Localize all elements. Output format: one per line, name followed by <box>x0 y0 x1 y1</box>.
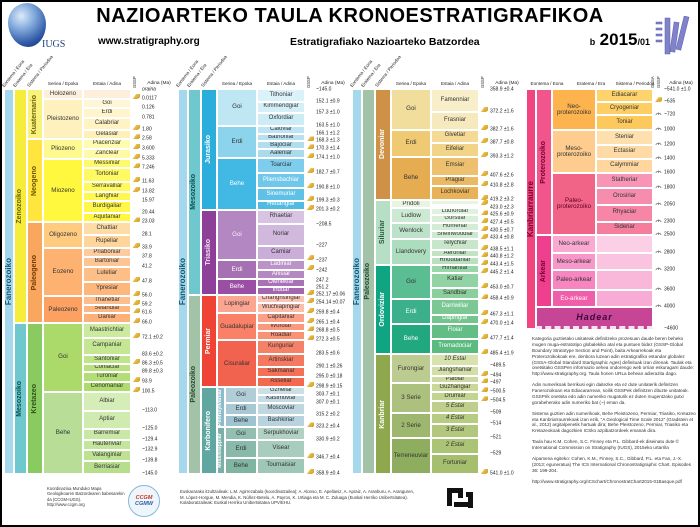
period-cell: Siluriar <box>375 200 391 265</box>
age-label: 477.7 ±1.4 <box>490 336 514 342</box>
age-label: 407.6 ±2.6 <box>490 172 514 178</box>
age-label: 440.8 ±1.2 <box>490 254 514 260</box>
series-cell: Pliozeno <box>43 139 83 158</box>
gssp-header: GSSP <box>132 76 137 88</box>
stage-cell <box>596 270 653 290</box>
age-label: 430.5 ±0.7 <box>490 227 514 233</box>
age-label: 3200 <box>664 267 675 273</box>
age-label: ~242 <box>316 268 327 274</box>
period-cell: Paleogeno <box>27 222 43 323</box>
panel-column-headers: Eontema / EonaEratema / EraSistema / Per… <box>4 59 178 89</box>
stage-cell: Pragiar <box>431 176 479 186</box>
era-cell: Arkear <box>536 235 552 307</box>
series-cell: Terreneuviar <box>391 438 431 474</box>
age-label: 265.1 ±0.4 <box>316 319 340 325</box>
stage-cell: Aeroniar <box>431 250 479 258</box>
age-label: 37.8 <box>142 254 152 260</box>
stage-header: Estaia / Adina <box>83 81 131 86</box>
age-label: 252.17 ±0.06 <box>316 292 345 298</box>
era-header: Eratema / Era <box>568 81 614 86</box>
age-label: 7.246 <box>142 165 155 171</box>
era-cell: Paleozoiko <box>362 89 375 474</box>
series-cell: Goi <box>391 265 431 299</box>
age-top-label: oraina <box>142 86 156 92</box>
series-cell: Paleo-proterozoiko <box>552 173 596 234</box>
age-label: 358.9 ±0.4 <box>316 471 340 477</box>
age-column: 358.9 ±0.4372.2 ±1.6382.7 ±1.6387.7 ±0.8… <box>488 89 526 474</box>
series-cell: Guadalupiar <box>217 313 257 341</box>
age-label: 2500 <box>664 232 675 238</box>
age-label: 0.0117 <box>142 95 157 101</box>
footnote-ages: Adin numerikoak berrikusi egin daitezke … <box>532 382 696 406</box>
age-label: 13.82 <box>142 188 155 194</box>
gssa-clock-icon: ◷ <box>655 250 662 253</box>
gssa-clock-icon: ◷ <box>655 219 662 222</box>
ics-logo <box>654 16 692 61</box>
stage-cell: 4 Estai <box>431 413 479 424</box>
panel-column-headers: Eontema / EonaEratema / EraSistema / Per… <box>178 59 352 89</box>
series-cell: Erdi <box>225 440 257 458</box>
stage-cell: Goi <box>83 99 131 109</box>
stage-cell: Chattiar <box>83 222 131 235</box>
stage-cell: Hettangiar <box>257 201 305 210</box>
age-label: 1600 <box>664 170 675 176</box>
age-label: ~497 <box>490 380 501 386</box>
stage-cell: Tournaisiar <box>257 458 305 474</box>
stage-cell: Gelasiar <box>83 130 131 140</box>
age-label: 170.3 ±1.4 <box>316 146 340 152</box>
age-label: 307.0 ±0.1 <box>316 399 340 405</box>
stage-cell: Langhiar <box>83 192 131 202</box>
gssp-header: GSSP <box>656 76 661 88</box>
series-cell: Meso-proterozoiko <box>552 130 596 173</box>
stage-cell: Sandbiar <box>431 288 479 299</box>
footnote-citation: Aipamena egiteko: Cohen, K.M., Finney, S… <box>532 456 696 474</box>
stage-cell: Aptiar <box>83 411 131 428</box>
age-label: 290.1 ±0.26 <box>316 364 342 370</box>
age-label: 372.2 ±1.6 <box>490 109 514 115</box>
stage-cell: Anisiar <box>257 270 305 280</box>
stage-cell: Bajociar <box>257 141 305 149</box>
series-cell: Goi <box>225 427 257 440</box>
stage-cell: Steniar <box>596 130 653 144</box>
gssp-header: GSSP <box>306 76 311 88</box>
stage-cell: Valanginiar <box>83 450 131 462</box>
stage-cell: Moscoviar <box>257 403 305 415</box>
stage-cell: Oxfordiar <box>257 113 305 126</box>
series-cell: Ludlow <box>391 208 431 223</box>
age-label: 174.1 ±1.0 <box>316 155 340 161</box>
series-cell: Pridoli <box>391 200 431 208</box>
age-label: 2.58 <box>142 136 152 142</box>
age-label: 438.5 ±1.1 <box>490 246 514 252</box>
gssp-spike-icon <box>479 469 488 474</box>
stage-cell: Ypresiar <box>83 282 131 297</box>
stage-cell: Toarciar <box>257 158 305 173</box>
stage-cell: Olenekiar <box>257 279 305 287</box>
stage-cell: 2 Estai <box>431 438 479 453</box>
stage-cell: Piacenziar <box>83 139 131 149</box>
stage-cell: Gorstiar <box>431 215 479 223</box>
stage-cell: Turoniar <box>83 372 131 382</box>
stage-cell: Drumiar <box>431 392 479 401</box>
stage-cell: Kunguriar <box>257 340 305 354</box>
era-cell: Proterozoiko <box>536 89 552 235</box>
age-label: 93.9 <box>142 379 152 385</box>
eon-strip: Fanerozoiko <box>178 89 188 474</box>
stage-cell: Barremiar <box>83 429 131 441</box>
stage-cell: Rhaetiar <box>257 210 305 225</box>
series-cell: Pleistozeno <box>43 99 83 140</box>
age-label: 303.7 ±0.1 <box>316 392 340 398</box>
age-label: 254.14 ±0.07 <box>316 299 345 305</box>
period-cell: Neogeno <box>27 139 43 222</box>
era-cell: Mesozoiko <box>188 89 201 295</box>
stage-cell: Serravalliar <box>83 182 131 192</box>
age-label: 433.4 ±0.8 <box>490 235 514 241</box>
stage-cell: Aaleniar <box>257 149 305 158</box>
stage-cell <box>431 200 479 205</box>
stage-cell: Bathoniar <box>257 134 305 142</box>
stage-cell: Kasimoviar <box>257 395 305 403</box>
stage-cell: Maastrichtiar <box>83 323 131 338</box>
series-header: Seriea / Epoka <box>43 81 83 86</box>
age-header: Adina (Ma) <box>488 81 526 86</box>
stage-cell: Cryogeniar <box>596 102 653 115</box>
stage-cell: Calabriar <box>83 118 131 130</box>
age-label: ~129.4 <box>142 437 157 443</box>
gssa-clock-icon: ◷ <box>655 127 662 130</box>
gssa-clock-icon: ◷ <box>655 185 662 188</box>
stage-cell: Selandiar <box>83 305 131 314</box>
age-label: 83.6 ±0.2 <box>142 352 163 358</box>
stage-cell: Changhsingiar <box>257 295 305 303</box>
series-cell: Behe <box>217 279 257 294</box>
gssa-clock-icon: ◷ <box>655 142 662 145</box>
period-cell: Kanbriar <box>375 354 391 474</box>
age-label: 41.2 <box>142 264 152 270</box>
series-cell: Behe <box>43 392 83 474</box>
age-label: ~145.0 <box>142 471 157 477</box>
age-label: 1200 <box>664 141 675 147</box>
stage-cell: Roadiar <box>257 331 305 340</box>
translators-credit: Euskararako itzultzaileak: L.M. Agirreza… <box>180 489 438 506</box>
gssp-spike-icon <box>479 200 488 205</box>
upv-ehu-logo <box>446 486 474 515</box>
series-cell: Furongiar <box>391 354 431 383</box>
stage-cell: Campaniar <box>83 338 131 355</box>
stage-cell: Floiar <box>431 324 479 339</box>
age-label: 100.5 <box>142 388 155 394</box>
age-label: 458.4 ±0.9 <box>490 296 514 302</box>
commission-name: Estratigrafiako Nazioarteko Batzordea <box>290 36 480 48</box>
age-label: ~514 <box>490 421 501 427</box>
stage-cell: Gzheliar <box>257 387 305 395</box>
age-label: 283.5 ±0.6 <box>316 351 340 357</box>
footnote-gssp: Kategoria guztietako unitateak definitze… <box>532 336 696 377</box>
gssa-clock-icon: ◷ <box>655 202 662 205</box>
age-label: 3.600 <box>142 146 155 152</box>
age-label: 423.0 ±2.3 <box>490 204 514 210</box>
series-cell: Neo-arkear <box>552 235 596 253</box>
stage-cell: Cenomaniar <box>83 382 131 392</box>
stage-cell: Tremadociar <box>431 339 479 354</box>
footnote-design: Taula hau K.M. Cohen, S.C. Finney eta P.… <box>532 439 696 451</box>
stage-cell: Carniar <box>257 246 305 261</box>
series-cell: Erdi <box>391 130 431 157</box>
eon-strip: Fanerozoiko <box>352 89 362 474</box>
stage-cell: Famenniar <box>431 89 479 112</box>
stage-cell: Aquitaniar <box>83 213 131 223</box>
age-label: 1400 <box>664 156 675 162</box>
age-label: 28.1 <box>142 232 152 238</box>
age-label: 182.7 ±0.7 <box>316 170 340 176</box>
age-label: ~720 <box>664 112 675 118</box>
age-label: 0.781 <box>142 115 155 121</box>
stage-cell: Burdigaliar <box>83 201 131 213</box>
series-header: Seriea / Epoka <box>391 81 431 86</box>
age-label: 1800 <box>664 185 675 191</box>
age-label: 541.0 ±1.0 <box>490 471 514 477</box>
age-label: 166.1 ±1.2 <box>316 130 340 136</box>
era-cell: Paleozoiko <box>188 295 201 474</box>
age-label: ~494 <box>490 373 501 379</box>
stage-cell: Capitaniar <box>257 313 305 323</box>
series-cell: Lopingiar <box>217 295 257 313</box>
series-cell: Behe <box>391 157 431 200</box>
stage-cell: Ludfordiar <box>431 208 479 216</box>
age-label: 298.9 ±0.15 <box>316 384 342 390</box>
stage-cell: Emsiar <box>431 157 479 176</box>
age-label: 199.3 ±0.3 <box>316 198 340 204</box>
page-title: NAZIOARTEKO TAULA KRONOESTRATIGRAFIKOA <box>92 5 608 28</box>
stage-cell: Calymmiar <box>596 159 653 173</box>
age-label: 190.8 ±1.0 <box>316 185 340 191</box>
gssp-spike-icon <box>305 469 314 474</box>
eon-strip: Fanerozoiko <box>4 89 14 474</box>
stage-cell: Hauteriviar <box>83 440 131 450</box>
period-cell: Devoniar <box>375 89 391 200</box>
age-label: 453.0 ±0.7 <box>490 285 514 291</box>
stratigraphy-url[interactable]: www.stratigraphy.org <box>98 36 200 47</box>
period-cell: Kretazeo <box>27 323 43 474</box>
age-label: 330.9 ±0.2 <box>316 437 340 443</box>
series-cell: Erdi <box>225 403 257 415</box>
age-label: 33.9 <box>142 244 152 250</box>
stage-cell: Ediacarar <box>596 89 653 102</box>
age-label: ~489.5 <box>490 362 505 368</box>
age-label: 268.8 ±0.5 <box>316 328 340 334</box>
stage-cell: Santoniar <box>83 355 131 364</box>
stage-cell: Berriasiar <box>83 461 131 474</box>
age-label: 59.2 <box>142 301 152 307</box>
stage-cell: Toniar <box>596 115 653 130</box>
stage-cell: Asseliar <box>257 377 305 387</box>
era-cell: Mesozoiko <box>14 323 27 474</box>
age-label: 443.4 ±1.5 <box>490 262 514 268</box>
age-label: 168.3 ±1.3 <box>316 138 340 144</box>
age-label: 346.7 ±0.4 <box>316 455 340 461</box>
age-label: 72.1 ±0.2 <box>142 334 163 340</box>
ccgm-url[interactable]: http://www.ccgm.org <box>47 502 125 507</box>
series-cell: 3 Serie <box>391 383 431 412</box>
stage-cell: Wordiar <box>257 323 305 332</box>
stage-cell: Tithoniar <box>257 89 305 102</box>
stage-cell <box>596 290 653 307</box>
stage-cell: Rhyaciar <box>596 205 653 222</box>
stage-cell: Guzhangiar <box>431 383 479 392</box>
stage-cell: Dapingiar <box>431 315 479 324</box>
series-cell: Neo-proterozoiko <box>552 89 596 130</box>
stage-cell: Artinskiar <box>257 354 305 367</box>
series-cell: Behe <box>225 415 257 428</box>
age-label: 315.2 ±0.2 <box>316 411 340 417</box>
age-label: ~227 <box>316 243 327 249</box>
age-label: 61.6 <box>142 310 152 316</box>
age-top-label: ~145.0 <box>316 86 331 92</box>
gssa-clock-icon: ◷ <box>655 156 662 159</box>
gssa-clock-icon: ◷ <box>655 170 662 173</box>
panel-column-headers: Eontema / EonaEratema / EraSistema / Per… <box>352 59 526 89</box>
stage-cell: Induar <box>257 287 305 295</box>
iugs-label: IUGS <box>42 39 65 50</box>
age-label: 425.6 ±0.9 <box>490 212 514 218</box>
period-cell: Permiar <box>201 295 217 387</box>
series-cell: Erdi <box>391 299 431 323</box>
age-label: ~529 <box>490 450 501 456</box>
gssa-clock-icon: ◷ <box>655 232 662 235</box>
series-cell: Llandovery <box>391 239 431 265</box>
age-label: ~237 <box>316 258 327 264</box>
eon-header: Eontema / Eona <box>526 81 568 86</box>
stage-cell: Rhuddaniar <box>431 257 479 265</box>
footnote-chart-url[interactable]: http://www.stratigraphy.org/ICSchart/Chr… <box>532 479 696 485</box>
age-label: 445.2 ±1.4 <box>490 269 514 275</box>
age-label: 382.7 ±1.6 <box>490 126 514 132</box>
stage-cell: Bartoniar <box>83 257 131 267</box>
hadean-cell: Hadear <box>536 307 653 329</box>
stage-cell: Tortoniar <box>83 168 131 182</box>
panel-2: Eontema / EonaEratema / EraSistema / Per… <box>178 59 352 474</box>
stage-cell: Katiar <box>431 273 479 288</box>
age-label: 467.3 ±1.1 <box>490 311 514 317</box>
age-label: ~208.5 <box>316 221 331 227</box>
stage-cell: Telychiar <box>431 239 479 250</box>
age-label: ~500.5 <box>490 389 505 395</box>
age-label: 152.1 ±0.9 <box>316 99 340 105</box>
age-header: Adina (Ma) <box>314 81 352 86</box>
age-label: 4000 <box>664 304 675 310</box>
period-cell: Jurasiko <box>201 89 217 210</box>
stage-cell: Orosiriar <box>596 188 653 205</box>
age-label: 5.333 <box>142 155 155 161</box>
series-cell: Meso-arkear <box>552 253 596 271</box>
age-label: 323.2 ±0.4 <box>316 424 340 430</box>
series-cell: Goi <box>217 89 257 126</box>
age-label: 419.2 ±3.2 <box>490 197 514 203</box>
series-cell: Goi <box>225 387 257 403</box>
panel-column-headers: Eontema / EonaEratema / EraSistema / Per… <box>526 59 700 89</box>
stage-cell: Priaboniar <box>83 248 131 258</box>
series-cell: Goi <box>391 89 431 130</box>
stage-cell: Frasniar <box>431 112 479 130</box>
series-cell: Paleo-arkear <box>552 270 596 290</box>
series-cell: Wenlock <box>391 223 431 238</box>
gssa-clock-icon: ◷ <box>655 267 662 270</box>
series-cell: Cisuraliar <box>217 340 257 387</box>
stage-cell: Himantiar <box>431 265 479 273</box>
ccgm-logo: CCGM CGMW <box>128 485 160 517</box>
stage-cell: Pliensbachiar <box>257 173 305 188</box>
stage-cell: Statheriar <box>596 173 653 188</box>
gssp-header: GSSP <box>480 76 485 88</box>
stage-cell: Albiar <box>83 392 131 411</box>
series-cell: Goi <box>43 323 83 392</box>
age-label: 0.126 <box>142 105 155 111</box>
era-cell: Zenozoiko <box>14 89 27 323</box>
stage-cell: Homeriar <box>431 223 479 231</box>
age-label: 2050 <box>664 202 675 208</box>
iugs-globe-icon <box>8 3 46 47</box>
age-label: 201.3 ±0.2 <box>316 206 340 212</box>
stage-cell: Wuchiapingiar <box>257 303 305 313</box>
stage-cell: 3 Estai <box>431 424 479 438</box>
age-label: 247.2 <box>316 278 329 284</box>
series-header: Seriea / Epoka <box>217 81 257 86</box>
age-label: 3600 <box>664 287 675 293</box>
period-cell: Ordoviziar <box>375 265 391 354</box>
stage-cell: Noriar <box>257 224 305 245</box>
gssa-clock-icon: ◷ <box>655 287 662 290</box>
period-cell: Triasiko <box>201 210 217 295</box>
age-label: 20.44 <box>142 210 155 216</box>
subperiod-cell: Pennsylvaniar <box>217 387 225 428</box>
chronostratigraphic-chart-page: IUGS NAZIOARTEKO TAULA KRONOESTRATIGRAFI… <box>0 0 700 527</box>
stage-cell: Lochkoviar <box>431 186 479 200</box>
age-label: 2300 <box>664 218 675 224</box>
stage-cell: Givetiar <box>431 130 479 143</box>
stage-cell: Sinemuriar <box>257 188 305 201</box>
series-cell: Behe <box>225 458 257 474</box>
series-cell: Oligozeno <box>43 222 83 247</box>
stage-cell: Zanclear <box>83 149 131 159</box>
stage-cell: Messiniar <box>83 159 131 169</box>
age-label: 157.3 ±1.0 <box>316 109 340 115</box>
age-label: 387.7 ±0.8 <box>490 139 514 145</box>
age-label: 56.0 <box>142 293 152 299</box>
footnote-sources: Sistema guztien adin numerikoak, Behe Pl… <box>532 411 696 435</box>
age-label: 393.3 ±1.2 <box>490 153 514 159</box>
series-cell: 2 Serie <box>391 413 431 439</box>
stage-cell: Eifeliar <box>431 143 479 157</box>
stage-cell: Caloviar <box>257 126 305 134</box>
age-label: ~125.0 <box>142 425 157 431</box>
age-column: oraina0.01170.1260.7811.802.583.6005.333… <box>140 89 178 474</box>
subperiod-cell: Mississippiar <box>217 427 225 474</box>
age-label: 259.8 ±0.4 <box>316 309 340 315</box>
age-label: 295.0 ±0.18 <box>316 374 342 380</box>
stage-cell: Bashkiriar <box>257 415 305 428</box>
age-label: 66.0 <box>142 320 152 326</box>
stage-cell: Ectasiar <box>596 145 653 159</box>
age-label: 470.0 ±1.4 <box>490 320 514 326</box>
stage-cell: Erdi <box>83 108 131 118</box>
age-label: ~113.0 <box>142 408 157 414</box>
gssa-clock-icon: ◷ <box>655 112 662 115</box>
age-label: ~504.5 <box>490 398 505 404</box>
age-label: 47.8 <box>142 278 152 284</box>
age-label: 1000 <box>664 127 675 133</box>
